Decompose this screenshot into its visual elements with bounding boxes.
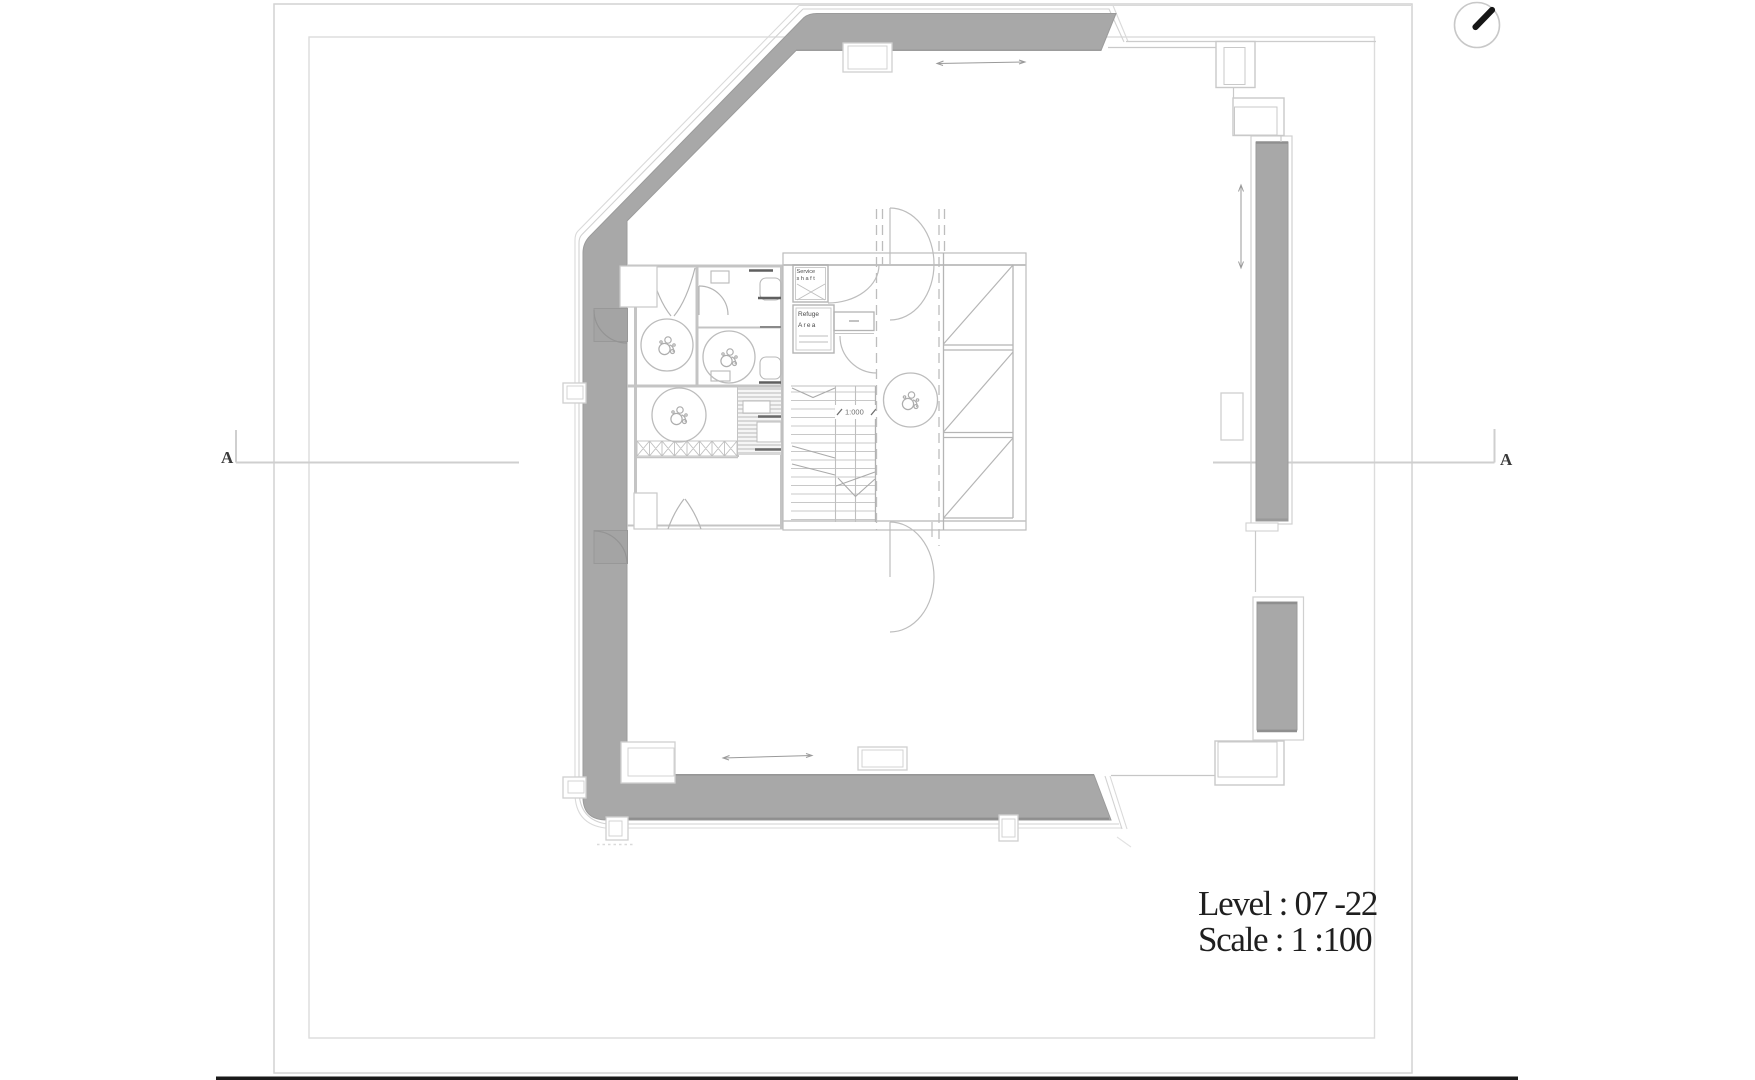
svg-text:Refuge: Refuge	[798, 311, 819, 318]
svg-text:Level : 07 -22: Level : 07 -22	[1198, 884, 1377, 923]
svg-text:1:000: 1:000	[845, 408, 864, 417]
svg-text:Service: Service	[797, 269, 816, 275]
svg-text:s h a f t: s h a f t	[797, 276, 816, 282]
svg-text:Scale : 1 :100: Scale : 1 :100	[1198, 920, 1372, 959]
svg-text:A: A	[1500, 450, 1513, 469]
svg-text:A: A	[221, 448, 234, 467]
svg-text:Area: Area	[798, 322, 817, 329]
